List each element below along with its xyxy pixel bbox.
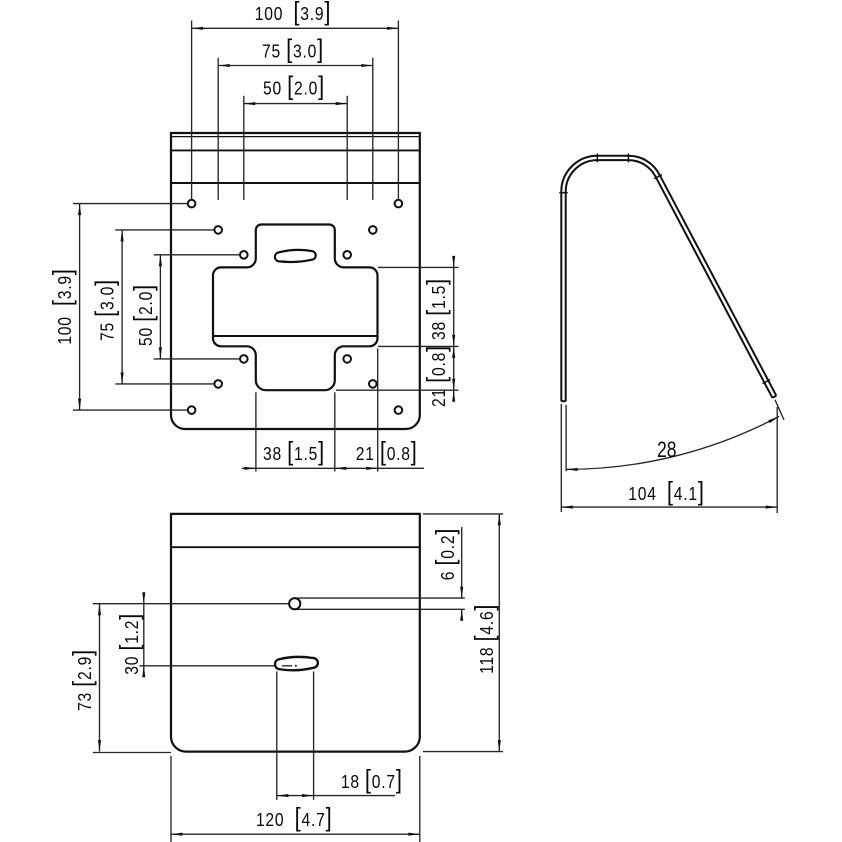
svg-text:100 [3.9]: 100 [3.9] bbox=[255, 0, 331, 26]
svg-text:28: 28 bbox=[657, 438, 677, 462]
